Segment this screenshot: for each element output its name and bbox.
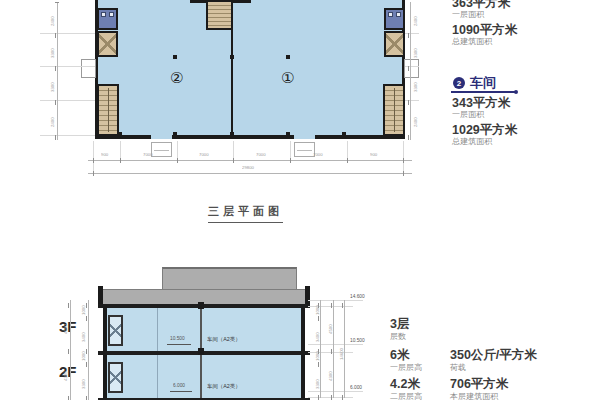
parapet-cap-right — [305, 286, 310, 305]
unit2-divider-dot — [514, 90, 518, 94]
unit2-total-label: 总建筑面积 — [452, 136, 492, 147]
plan-top-stub-right — [233, 0, 251, 3]
toilet-fixture — [388, 12, 393, 17]
plan-floor-field — [95, 0, 405, 139]
section-wall-right-2f — [301, 355, 305, 398]
elevator-right — [384, 31, 405, 57]
floor-2f-label: 2F — [59, 363, 77, 380]
elevation-2f-right: 6.000 — [350, 385, 362, 390]
height1-label: 一层层高 — [390, 362, 422, 373]
toilet-room-right — [384, 8, 405, 30]
toilet-fixture — [396, 12, 401, 17]
unit-2-label: ② — [170, 69, 183, 87]
door-opening-right — [294, 135, 315, 139]
column — [342, 132, 346, 136]
plan-title: 三层平面图 — [208, 204, 283, 223]
toilet-room-left — [97, 8, 118, 30]
partition-2f — [157, 355, 158, 398]
column — [286, 132, 290, 136]
section-wall-right-3f — [301, 308, 305, 351]
floor-3f-label: 3F — [59, 318, 77, 335]
column-section — [198, 302, 204, 309]
plan-center-wall — [231, 28, 233, 135]
room-2f-label: 车间（A2类） — [207, 383, 241, 391]
elevation-2f: 6.000 — [173, 383, 185, 388]
roof-parapet — [100, 289, 308, 305]
room-3f-label: 车间（A2类） — [207, 336, 241, 344]
elevation-3f-right: 10.500 — [350, 338, 365, 343]
door-opening-left — [151, 135, 172, 139]
unit2-badge-icon: 2 — [453, 77, 465, 89]
toilet-fixture — [101, 12, 106, 17]
partition-3f — [157, 308, 158, 351]
parapet-cap-left — [98, 286, 103, 305]
unit2-area-label: 一层面积 — [452, 109, 484, 120]
floor-area-label: 本层建筑面积 — [450, 391, 498, 400]
elevator-section-2f — [108, 362, 123, 393]
canopy-right — [294, 142, 315, 157]
toilet-fixture — [109, 12, 114, 17]
entrance-porch-right — [404, 59, 419, 78]
center-wall-2f — [200, 355, 202, 398]
column — [230, 55, 234, 59]
column — [230, 132, 234, 136]
unit2-title: 车间 — [470, 74, 496, 92]
plan-wall-bottom — [95, 135, 405, 139]
room-3f — [107, 308, 301, 351]
unit2-header: 2 车间 — [453, 74, 496, 92]
canopy-left — [151, 142, 172, 157]
floors-label: 层数 — [390, 331, 406, 342]
stairs-left — [97, 84, 119, 136]
elevation-3f: 10.500 — [170, 336, 185, 341]
unit1-total-label: 总建筑面积 — [452, 36, 492, 47]
elevator-section-3f — [108, 315, 123, 346]
room-2f — [107, 355, 301, 398]
center-wall-3f — [200, 308, 202, 351]
unit-1-label: ① — [281, 69, 294, 87]
height2-label: 二层层高 — [390, 391, 422, 400]
elevator-left — [97, 31, 118, 57]
unit1-area-label: 一层面积 — [452, 9, 484, 20]
entrance-porch-left — [81, 59, 96, 78]
stairs-right — [383, 84, 405, 136]
center-stair — [206, 0, 233, 30]
elevation-roof-right: 14.600 — [350, 294, 365, 299]
section-wall-left-3f — [103, 308, 107, 351]
load-label: 荷载 — [450, 362, 466, 373]
column — [173, 132, 177, 136]
column — [286, 55, 290, 59]
unit2-divider — [451, 91, 515, 93]
column — [173, 55, 177, 59]
column — [118, 132, 122, 136]
section-wall-left-2f — [103, 355, 107, 398]
architectural-sheet: ② ① 900 7000 7000 7000 7000 900 29800 — [0, 0, 600, 400]
